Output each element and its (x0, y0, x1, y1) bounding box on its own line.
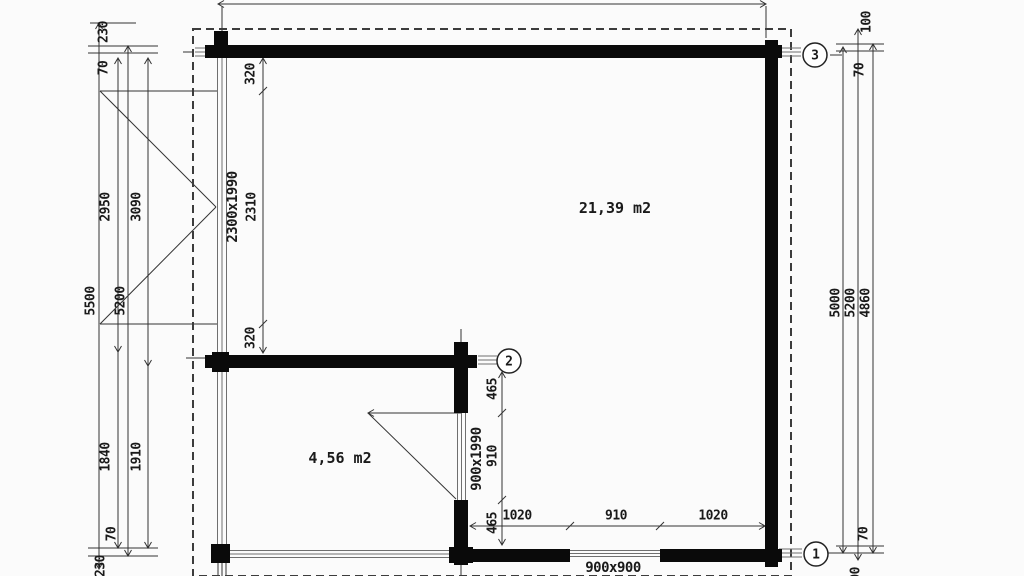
interior-wall-vertical-upper (454, 342, 468, 413)
dim-left-70-top: 70 (97, 61, 112, 76)
dim-left-5500: 5500 (84, 286, 99, 315)
dim-left-1840: 1840 (99, 442, 114, 471)
interior-wall-horizontal (205, 355, 477, 368)
dim-right-5000: 5000 (829, 288, 844, 317)
dim-bottom-1020-right: 1020 (698, 509, 727, 524)
window-size-label: 900x900 (585, 560, 641, 576)
dim-right-5200: 5200 (844, 288, 859, 317)
dim-left-230-top: 230 (97, 21, 112, 43)
thin-walls (195, 48, 802, 558)
dim-inner-910: 910 (486, 445, 501, 467)
top-wall (205, 45, 782, 58)
dimension-arrows (96, 1, 877, 570)
axis-circles (497, 43, 828, 566)
dim-front-320-bottom: 320 (244, 327, 259, 349)
bottom-wall-left-of-window (470, 549, 570, 562)
room-label-veranda: 4,56 m2 (308, 449, 371, 467)
dim-left-1910: 1910 (130, 442, 145, 471)
dim-bottom-910: 910 (605, 509, 627, 524)
dim-left-230-bottom: 230 (94, 555, 109, 576)
dim-right-4860: 4860 (859, 288, 874, 317)
dim-right-100-bottom: 100 (849, 567, 864, 576)
dim-front-2310: 2310 (245, 192, 260, 221)
inner-door-size-label: 900x1990 (469, 427, 485, 490)
axis-label-2: 2 (505, 355, 513, 370)
dim-right-100-top: 100 (860, 11, 875, 33)
bottom-wall-right-of-window (660, 549, 782, 562)
dimension-lines (88, 4, 884, 576)
axis-label-1: 1 (812, 548, 820, 563)
dim-front-320-top: 320 (244, 63, 259, 85)
front-door-size-label: 2300x1990 (225, 171, 241, 242)
dim-bottom-1020-left: 1020 (502, 509, 531, 524)
dim-left-5200: 5200 (114, 286, 129, 315)
walls (205, 31, 782, 567)
roof-overhang-outline (193, 29, 791, 576)
right-wall (765, 40, 778, 567)
floorplan-page: 5000 230 70 2950 3090 5500 5200 1840 191… (0, 0, 1024, 576)
dim-top-overall-cut: 5000 (527, 0, 589, 3)
dim-top-overall-value: 5000 (527, 0, 589, 3)
room-label-main: 21,39 m2 (579, 199, 651, 217)
dim-left-2950: 2950 (99, 192, 114, 221)
interior-bottom-junction (449, 547, 473, 563)
dim-left-3090: 3090 (130, 192, 145, 221)
dim-inner-465-bottom: 465 (486, 512, 501, 534)
dim-inner-465-top: 465 (486, 378, 501, 400)
dim-left-70-bottom: 70 (105, 527, 120, 542)
axis-label-3: 3 (811, 49, 819, 64)
dim-right-70-top: 70 (853, 63, 868, 78)
bottom-left-post (211, 544, 230, 563)
dim-right-70-bottom: 70 (857, 527, 872, 542)
top-left-corner-block (214, 31, 228, 58)
